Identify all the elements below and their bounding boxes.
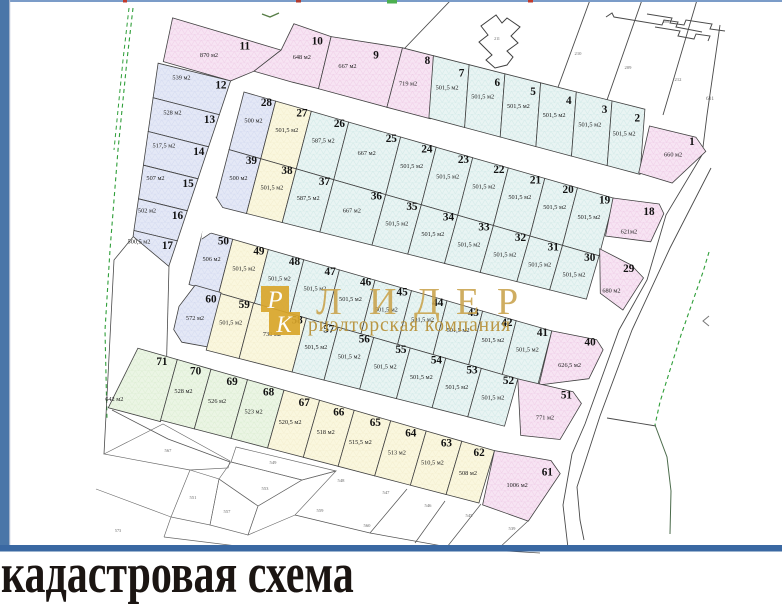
svg-text:500,5 м2: 500,5 м2 — [128, 238, 151, 245]
svg-text:539: 539 — [509, 526, 517, 531]
svg-text:621м2: 621м2 — [621, 229, 638, 236]
svg-text:513 м2: 513 м2 — [388, 450, 406, 457]
svg-text:48: 48 — [289, 256, 301, 268]
svg-text:667 м2: 667 м2 — [338, 63, 356, 70]
svg-text:501,5 м2: 501,5 м2 — [508, 194, 531, 201]
svg-text:520,5 м2: 520,5 м2 — [279, 419, 302, 426]
svg-text:501,5 м2: 501,5 м2 — [493, 252, 516, 259]
svg-text:501,5 м2: 501,5 м2 — [445, 384, 468, 391]
svg-text:507 м2: 507 м2 — [146, 175, 164, 182]
svg-text:501,5 м2: 501,5 м2 — [400, 163, 423, 170]
svg-text:17: 17 — [162, 240, 174, 252]
svg-text:Р: Р — [266, 287, 282, 314]
svg-text:501,5 м2: 501,5 м2 — [374, 364, 397, 371]
svg-text:23: 23 — [458, 154, 470, 166]
svg-text:210: 210 — [575, 51, 583, 56]
svg-text:67: 67 — [299, 397, 311, 409]
svg-text:69: 69 — [227, 376, 239, 388]
svg-text:36: 36 — [371, 191, 383, 203]
svg-text:508 м2: 508 м2 — [459, 470, 477, 477]
svg-text:648 м2: 648 м2 — [293, 54, 311, 61]
svg-text:39: 39 — [246, 155, 258, 167]
svg-text:523 м2: 523 м2 — [245, 408, 263, 415]
svg-text:71: 71 — [156, 356, 168, 368]
svg-text:211: 211 — [494, 36, 500, 41]
svg-text:510,5 м2: 510,5 м2 — [421, 460, 444, 467]
svg-text:667 м2: 667 м2 — [343, 208, 361, 215]
svg-text:66: 66 — [333, 407, 345, 419]
svg-text:500 м2: 500 м2 — [229, 175, 247, 182]
svg-text:16: 16 — [172, 210, 184, 222]
svg-text:501,5 м2: 501,5 м2 — [481, 395, 504, 402]
svg-text:11: 11 — [240, 40, 251, 52]
svg-text:567: 567 — [165, 448, 173, 453]
svg-text:13: 13 — [204, 114, 216, 126]
svg-text:риэлторская компания: риэлторская компания — [308, 315, 511, 336]
svg-text:528 м2: 528 м2 — [163, 110, 181, 117]
svg-text:64: 64 — [405, 427, 417, 439]
svg-text:517,5 м2: 517,5 м2 — [152, 142, 175, 149]
svg-text:49: 49 — [253, 246, 265, 258]
svg-text:18: 18 — [643, 206, 655, 218]
svg-text:47: 47 — [325, 266, 337, 278]
svg-text:545: 545 — [466, 513, 474, 518]
svg-text:9: 9 — [373, 50, 379, 62]
svg-text:547: 547 — [383, 490, 391, 495]
svg-text:60: 60 — [205, 294, 217, 306]
svg-text:515,5 м2: 515,5 м2 — [349, 439, 372, 446]
svg-text:502 м2: 502 м2 — [138, 208, 156, 215]
svg-text:8: 8 — [425, 55, 431, 67]
svg-text:31: 31 — [548, 242, 560, 254]
svg-text:65: 65 — [370, 417, 382, 429]
svg-text:549: 549 — [270, 460, 278, 465]
svg-text:551: 551 — [190, 495, 198, 500]
svg-text:667 м2: 667 м2 — [358, 150, 376, 157]
svg-text:501,5 м2: 501,5 м2 — [410, 374, 433, 381]
svg-text:501,5 м2: 501,5 м2 — [507, 103, 530, 110]
svg-text:771 м2: 771 м2 — [536, 415, 554, 422]
svg-text:501,5 м2: 501,5 м2 — [260, 185, 283, 192]
svg-text:501,5 м2: 501,5 м2 — [436, 84, 459, 91]
svg-text:6: 6 — [495, 77, 501, 89]
svg-text:660 м2: 660 м2 — [664, 152, 682, 159]
svg-text:45: 45 — [397, 287, 409, 299]
svg-text:50: 50 — [218, 235, 230, 247]
svg-text:501,5 м2: 501,5 м2 — [457, 241, 480, 248]
svg-text:501,5 м2: 501,5 м2 — [232, 265, 255, 272]
svg-text:501,5 м2: 501,5 м2 — [516, 347, 539, 354]
svg-text:559: 559 — [317, 508, 325, 513]
svg-text:501,5 м2: 501,5 м2 — [543, 112, 566, 119]
svg-text:560: 560 — [364, 523, 372, 528]
svg-text:501,5 м2: 501,5 м2 — [543, 204, 566, 211]
svg-text:14: 14 — [193, 146, 205, 158]
svg-text:4: 4 — [566, 95, 572, 107]
svg-text:63: 63 — [441, 438, 453, 450]
svg-text:501,5 м2: 501,5 м2 — [275, 127, 298, 134]
svg-text:10: 10 — [312, 36, 324, 48]
svg-text:38: 38 — [281, 165, 293, 177]
svg-text:68: 68 — [263, 387, 275, 399]
svg-text:3: 3 — [602, 104, 608, 116]
svg-text:51: 51 — [561, 390, 573, 402]
svg-text:501,5 м2: 501,5 м2 — [339, 296, 362, 303]
svg-text:21: 21 — [530, 175, 542, 187]
svg-text:546: 546 — [425, 503, 433, 508]
svg-text:26: 26 — [334, 118, 346, 130]
svg-text:70: 70 — [190, 366, 202, 378]
svg-text:53: 53 — [466, 365, 478, 377]
svg-text:501,5 м2: 501,5 м2 — [338, 353, 361, 360]
svg-text:52: 52 — [503, 375, 515, 387]
svg-text:кадастровая схема: кадастровая схема — [1, 542, 354, 604]
svg-text:7: 7 — [459, 68, 465, 80]
svg-text:626,5 м2: 626,5 м2 — [558, 362, 581, 369]
svg-text:501,5 м2: 501,5 м2 — [528, 262, 551, 269]
svg-text:501,5 м2: 501,5 м2 — [436, 173, 459, 180]
svg-text:870 м2: 870 м2 — [200, 52, 218, 59]
svg-text:34: 34 — [443, 211, 455, 223]
svg-text:212: 212 — [675, 77, 683, 82]
svg-text:500 м2: 500 м2 — [244, 118, 262, 125]
svg-text:501,5 м2: 501,5 м2 — [472, 184, 495, 191]
svg-text:501,5 м2: 501,5 м2 — [578, 122, 601, 129]
svg-text:59: 59 — [239, 299, 251, 311]
svg-text:28: 28 — [261, 97, 273, 109]
svg-text:501,5 м2: 501,5 м2 — [421, 231, 444, 238]
svg-text:501,5 м2: 501,5 м2 — [304, 344, 327, 351]
svg-text:32: 32 — [515, 232, 527, 244]
svg-text:15: 15 — [183, 178, 195, 190]
svg-text:506 м2: 506 м2 — [203, 256, 221, 263]
svg-text:680 м2: 680 м2 — [602, 287, 620, 294]
svg-text:548: 548 — [338, 478, 346, 483]
svg-text:1: 1 — [689, 136, 695, 148]
svg-text:501,5 м2: 501,5 м2 — [481, 337, 504, 344]
svg-text:501,5 м2: 501,5 м2 — [577, 214, 600, 221]
svg-text:501,5 м2: 501,5 м2 — [219, 319, 242, 326]
svg-text:501,5 м2: 501,5 м2 — [385, 221, 408, 228]
svg-text:209: 209 — [625, 65, 633, 70]
svg-text:25: 25 — [386, 133, 398, 145]
svg-text:631: 631 — [706, 96, 714, 102]
svg-text:557: 557 — [224, 509, 232, 514]
svg-text:61: 61 — [542, 467, 554, 479]
svg-text:54: 54 — [431, 354, 443, 366]
svg-text:587,5 м2: 587,5 м2 — [297, 195, 320, 202]
svg-text:30: 30 — [584, 252, 596, 264]
svg-text:501,5 м2: 501,5 м2 — [613, 130, 636, 137]
svg-text:62: 62 — [474, 447, 486, 459]
svg-text:572 м2: 572 м2 — [186, 315, 204, 322]
svg-text:35: 35 — [406, 201, 418, 213]
svg-text:719 м2: 719 м2 — [399, 81, 417, 88]
svg-text:642 м2: 642 м2 — [105, 396, 123, 403]
svg-text:55: 55 — [395, 344, 407, 356]
svg-text:587,5 м2: 587,5 м2 — [312, 138, 335, 145]
svg-text:518 м2: 518 м2 — [317, 429, 335, 436]
svg-text:27: 27 — [296, 107, 308, 119]
svg-text:33: 33 — [478, 222, 490, 234]
svg-text:К: К — [275, 312, 293, 337]
svg-text:40: 40 — [585, 337, 597, 349]
svg-text:539 м2: 539 м2 — [172, 75, 190, 82]
svg-text:24: 24 — [421, 143, 433, 155]
svg-text:41: 41 — [537, 327, 549, 339]
svg-text:22: 22 — [493, 164, 505, 176]
svg-text:553: 553 — [262, 486, 270, 491]
svg-text:20: 20 — [563, 184, 575, 196]
svg-text:37: 37 — [319, 176, 331, 188]
svg-text:2: 2 — [635, 112, 641, 124]
svg-text:528 м2: 528 м2 — [174, 388, 192, 395]
svg-text:526 м2: 526 м2 — [208, 398, 226, 405]
svg-text:501,5 м2: 501,5 м2 — [268, 276, 291, 283]
svg-text:29: 29 — [623, 263, 635, 275]
svg-text:1006 м2: 1006 м2 — [507, 482, 528, 489]
svg-text:501,5 м2: 501,5 м2 — [471, 94, 494, 101]
svg-text:19: 19 — [599, 194, 611, 206]
svg-text:12: 12 — [215, 80, 227, 92]
svg-text:501,5 м2: 501,5 м2 — [563, 272, 586, 279]
svg-text:573: 573 — [115, 528, 121, 533]
svg-text:5: 5 — [530, 86, 536, 98]
